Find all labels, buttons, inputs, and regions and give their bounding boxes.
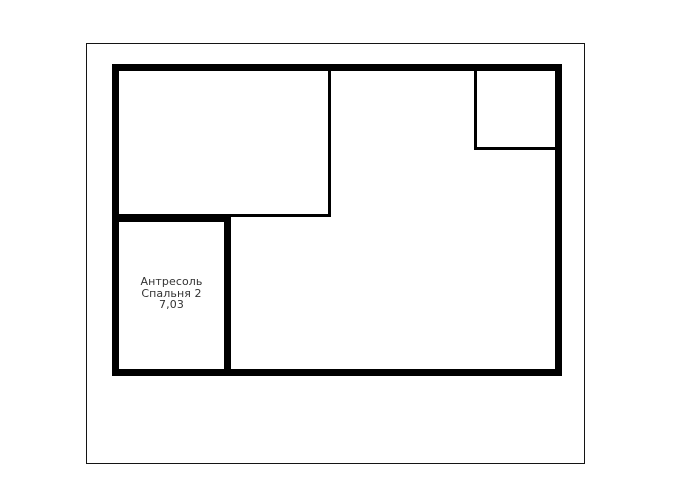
floor-plan-canvas: Антресоль Спальня 2 7,03 bbox=[0, 0, 685, 502]
room-label-line1: Антресоль bbox=[140, 276, 202, 288]
room-top-right bbox=[474, 71, 555, 150]
room-mezzanine-bedroom-2: Антресоль Спальня 2 7,03 bbox=[112, 215, 231, 376]
room-label: Антресоль Спальня 2 7,03 bbox=[140, 276, 202, 311]
room-area-value: 7,03 bbox=[140, 299, 202, 311]
room-upper-left bbox=[119, 71, 331, 217]
